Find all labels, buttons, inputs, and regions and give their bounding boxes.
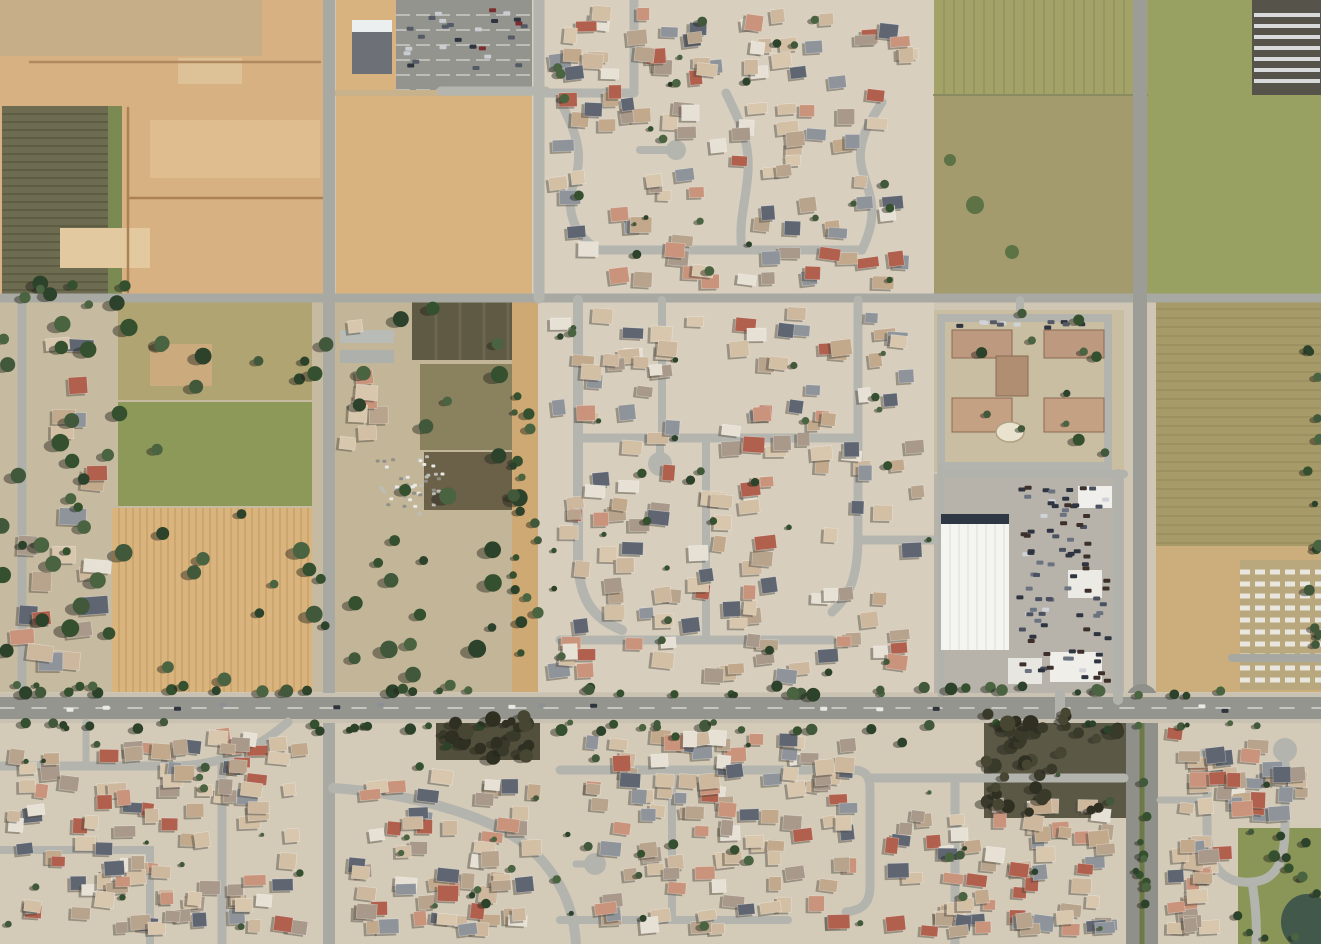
complex-building xyxy=(1044,398,1104,432)
green-patch-1 xyxy=(966,196,984,214)
grass-field-ne-upper xyxy=(934,0,1148,95)
street xyxy=(1252,882,1256,944)
church-gable xyxy=(352,20,392,32)
complex-building-center xyxy=(996,356,1028,396)
graded-patch-1 xyxy=(60,228,150,268)
grass-field-ne xyxy=(934,95,1148,300)
pasture-upper xyxy=(118,300,312,400)
church-parking-lot xyxy=(396,0,532,92)
satellite-imagery-viewport[interactable] xyxy=(0,0,1321,944)
pasture-green xyxy=(118,402,312,506)
graded-pad-nw xyxy=(0,0,262,56)
field-east-mid xyxy=(1156,300,1321,546)
cul-de-sac xyxy=(666,140,686,160)
green-patch-2 xyxy=(1005,245,1019,259)
store-entry-band xyxy=(941,514,1009,524)
greenhouse-rows xyxy=(1254,15,1320,81)
plowed-field xyxy=(112,508,312,692)
green-strip xyxy=(108,106,122,298)
big-box-store xyxy=(941,524,1009,650)
green-patch-3 xyxy=(944,154,956,166)
pad-building-2 xyxy=(1068,570,1102,598)
church-roof xyxy=(352,32,392,74)
rv-storage-lot xyxy=(1240,560,1321,690)
greenhouse-2 xyxy=(340,350,394,363)
satellite-map[interactable] xyxy=(0,0,1321,944)
graded-patch-3 xyxy=(150,120,320,178)
